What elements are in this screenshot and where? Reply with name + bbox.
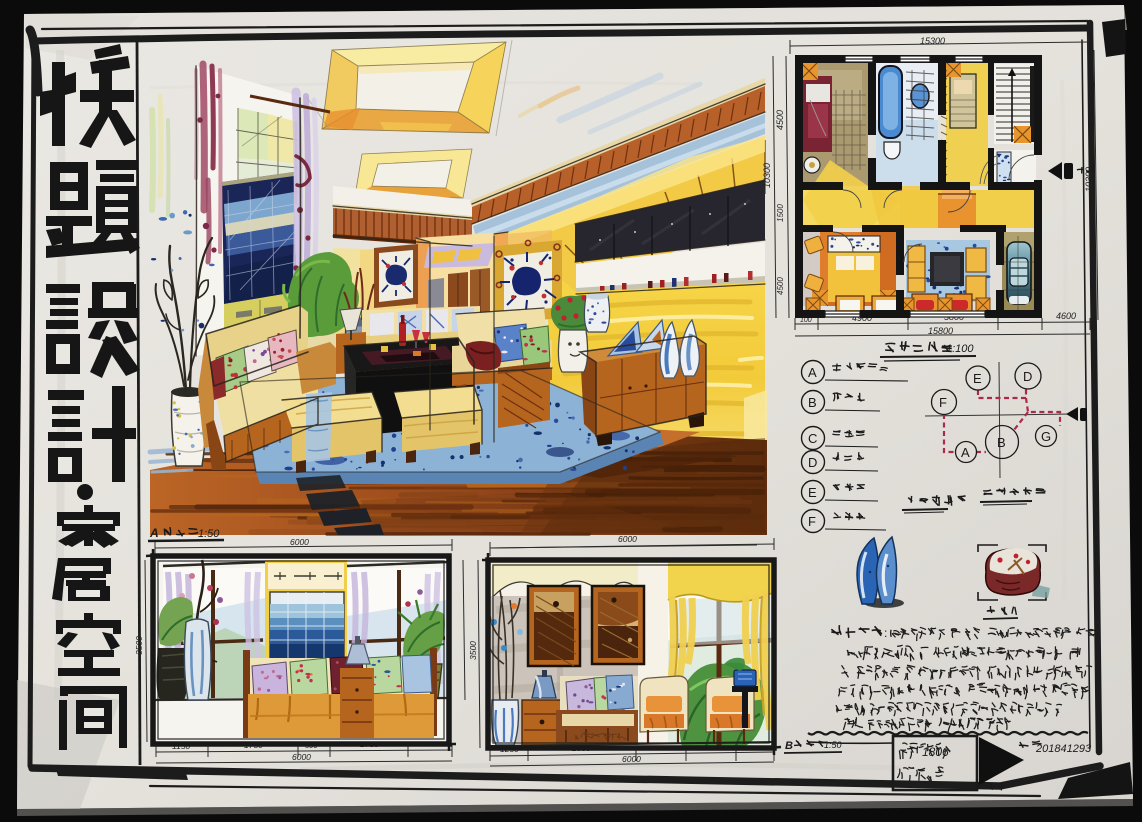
svg-text:6000: 6000 [618, 534, 637, 544]
svg-text:D: D [1023, 369, 1032, 384]
svg-text:100: 100 [800, 317, 812, 324]
svg-text:15800: 15800 [928, 326, 953, 336]
svg-text:B: B [997, 435, 1006, 450]
svg-text:6000: 6000 [292, 752, 311, 762]
svg-text:1:50: 1:50 [824, 740, 842, 750]
svg-text:201841293: 201841293 [1035, 743, 1092, 755]
svg-text:1:50: 1:50 [198, 528, 220, 540]
svg-text:A: A [961, 445, 970, 460]
svg-text:3500: 3500 [134, 636, 144, 655]
svg-text:4500: 4500 [776, 277, 785, 295]
svg-text:B: B [785, 740, 793, 752]
svg-text:15300: 15300 [920, 36, 945, 46]
svg-text:A: A [149, 526, 159, 540]
svg-text:A: A [808, 365, 817, 380]
svg-text:4600: 4600 [1056, 311, 1076, 321]
svg-text:6000: 6000 [290, 537, 309, 547]
svg-text:1806: 1806 [922, 745, 949, 759]
svg-text:6000: 6000 [622, 754, 641, 764]
svg-text:C: C [808, 431, 817, 446]
svg-text:1500: 1500 [776, 204, 785, 222]
svg-text:F: F [939, 395, 947, 410]
svg-text:E: E [973, 371, 982, 386]
svg-text:F: F [808, 514, 816, 529]
svg-text:1:100: 1:100 [946, 343, 974, 355]
svg-text:10300: 10300 [762, 163, 772, 188]
svg-text:3500: 3500 [468, 641, 478, 660]
svg-text::: : [884, 626, 887, 640]
svg-text:4500: 4500 [775, 110, 785, 130]
svg-text:B: B [808, 395, 817, 410]
svg-text:G: G [1041, 429, 1051, 444]
svg-text:D: D [808, 455, 817, 470]
svg-text:E: E [808, 485, 817, 500]
